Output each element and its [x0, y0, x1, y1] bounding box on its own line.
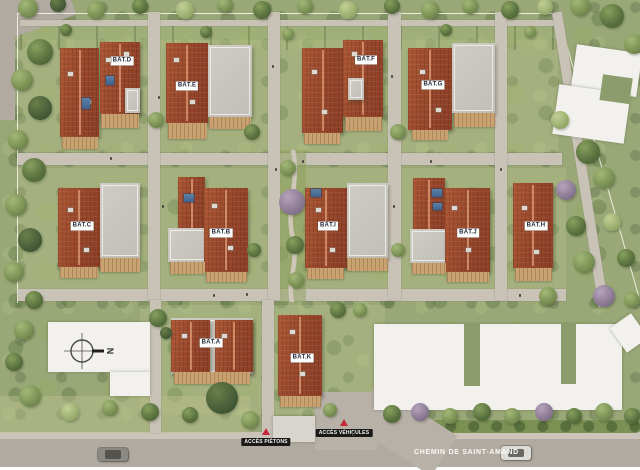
car — [98, 448, 128, 461]
tree — [339, 1, 357, 19]
tree — [282, 28, 294, 40]
tree — [280, 160, 296, 176]
building-label-k: BÂT.K — [291, 354, 314, 363]
path-vertical-4 — [495, 12, 507, 300]
tree — [141, 403, 159, 421]
building-j-flat-roof — [410, 229, 448, 263]
roof-skylight — [330, 248, 335, 252]
building-c-deck — [100, 258, 140, 272]
path-vertical-bottom-2 — [262, 300, 274, 433]
roof-skylight — [316, 208, 321, 212]
building-f-deck — [304, 133, 340, 144]
roof-skylight — [534, 250, 539, 254]
building-k-deck — [280, 396, 321, 407]
tree — [8, 130, 28, 150]
roof-skylight — [124, 52, 129, 56]
solar-panel — [82, 98, 90, 109]
tree — [593, 167, 615, 189]
roof-skylight — [68, 208, 73, 212]
neighbor-building-bottom — [374, 324, 622, 410]
person-figure — [352, 433, 354, 436]
building-label-c: BÂT.C — [71, 222, 94, 231]
tree — [241, 411, 259, 429]
person-figure — [246, 293, 248, 296]
roof-skylight — [290, 330, 295, 334]
tree — [391, 243, 405, 257]
solar-panel — [433, 203, 442, 210]
building-label-b: BÂT.B — [210, 229, 233, 238]
tree — [524, 26, 536, 38]
access-triangle-icon — [340, 419, 348, 426]
building-f-deck — [345, 117, 382, 131]
compass-north-label: N — [105, 348, 115, 355]
tree — [440, 24, 452, 36]
tree — [330, 302, 346, 318]
tree — [442, 408, 458, 424]
tree — [4, 262, 24, 282]
roof-skylight — [452, 206, 457, 210]
roof-skylight — [174, 58, 179, 62]
tree — [551, 111, 569, 129]
person-figure — [158, 96, 160, 99]
building-label-i: BÂT.I — [318, 222, 338, 231]
tree — [25, 291, 43, 309]
tree — [149, 309, 167, 327]
roof-skylight — [312, 70, 317, 74]
tree — [353, 303, 367, 317]
tree — [617, 249, 635, 267]
neighbor-building-right — [549, 38, 640, 153]
person-figure — [272, 65, 274, 68]
tree — [421, 1, 439, 19]
building-c-deck — [60, 267, 98, 278]
tree — [206, 382, 238, 414]
path-vertical-1 — [148, 12, 160, 300]
access-pedestrian-label: ACCÈS PIÉTONS — [241, 438, 290, 446]
building-label-g: BÂT.G — [422, 81, 445, 90]
tree — [18, 228, 42, 252]
person-figure — [275, 168, 277, 171]
solar-panel — [106, 76, 114, 85]
tree — [5, 353, 23, 371]
roof-skylight — [84, 248, 89, 252]
site-plan: BÂT.A BÂT.B BÂT.C BÂT.D BÂT.E BÂT.F BÂT.… — [0, 0, 640, 470]
path-top — [20, 20, 556, 26]
tree — [60, 24, 72, 36]
person-figure — [162, 205, 164, 208]
tree — [504, 408, 520, 424]
neighbor-gap — [561, 324, 576, 384]
building-c-flat-roof — [100, 183, 140, 258]
building-label-h: BÂT.H — [525, 222, 548, 231]
building-d-roof — [60, 48, 99, 137]
tree — [102, 400, 118, 416]
building-g-deck — [454, 113, 495, 127]
tree — [411, 403, 429, 421]
road-left-edge — [0, 0, 15, 120]
tree — [566, 216, 586, 236]
building-e-flat-roof — [208, 45, 252, 117]
solar-panel — [432, 189, 442, 197]
tree — [160, 327, 172, 339]
person-figure — [391, 75, 393, 78]
tree — [200, 26, 212, 38]
tree — [501, 1, 519, 19]
building-i-deck — [307, 268, 344, 279]
building-d-deck — [62, 137, 98, 149]
person-figure — [430, 160, 432, 163]
path-vertical-2 — [268, 12, 280, 300]
tree — [473, 403, 491, 421]
solar-panel — [311, 189, 321, 197]
tree — [253, 1, 271, 19]
tree — [390, 124, 406, 140]
person-figure — [302, 160, 304, 163]
building-i-deck — [347, 258, 388, 271]
tree — [244, 124, 260, 140]
neighbor-courtyard — [599, 74, 632, 104]
tree — [5, 194, 27, 216]
tree — [383, 405, 401, 423]
roof-skylight — [352, 52, 357, 56]
tree — [593, 285, 615, 307]
tree — [61, 403, 79, 421]
solar-panel — [184, 194, 194, 202]
tree — [595, 403, 613, 421]
tree — [603, 213, 621, 231]
building-label-f: BÂT.F — [355, 56, 377, 65]
tree — [148, 112, 164, 128]
building-label-j: BÂT.J — [457, 229, 479, 238]
neighbor-gap — [464, 324, 480, 386]
roof-skylight — [68, 72, 73, 76]
access-vehicles-label: ACCÈS VÉHICULES — [316, 429, 373, 437]
person-figure — [393, 205, 395, 208]
tree — [600, 4, 624, 28]
tree — [22, 158, 46, 182]
building-b-deck — [170, 262, 205, 274]
tree — [28, 96, 52, 120]
building-f-roof — [302, 48, 343, 133]
building-b-flat-roof — [168, 228, 207, 262]
building-g-flat-roof — [452, 43, 495, 113]
access-triangle-icon — [262, 428, 270, 435]
tree — [624, 34, 640, 54]
roof-skylight — [222, 334, 227, 338]
building-e-deck — [168, 123, 207, 139]
building-j-deck — [412, 263, 446, 274]
tree — [19, 385, 41, 407]
tree — [556, 180, 576, 200]
tree — [576, 140, 600, 164]
building-d-flat-roof — [125, 88, 140, 113]
roof-skylight — [436, 108, 441, 112]
building-label-a: BÂT.A — [200, 339, 223, 348]
tree — [624, 408, 640, 424]
tree — [279, 189, 305, 215]
person-figure — [110, 157, 112, 160]
building-a-deck — [174, 372, 250, 384]
roof-skylight — [420, 70, 425, 74]
tree — [286, 236, 304, 254]
tree — [11, 69, 33, 91]
roof-skylight — [190, 100, 195, 104]
street-name: CHEMIN DE SAINT-AMAND — [414, 449, 519, 456]
building-j-deck — [447, 272, 489, 282]
tree — [14, 320, 34, 340]
building-label-d: BÂT.D — [111, 57, 134, 66]
building-b-roof — [178, 177, 205, 231]
tree — [247, 243, 261, 257]
building-f-flat-roof — [348, 78, 364, 100]
tree — [624, 292, 640, 308]
tree — [27, 39, 53, 65]
tree — [539, 287, 557, 305]
tree — [182, 407, 198, 423]
tree — [535, 403, 553, 421]
building-d-deck — [101, 114, 139, 128]
building-label-e: BÂT.E — [176, 82, 198, 91]
compass-rose: N — [52, 322, 118, 380]
tree — [573, 251, 595, 273]
roof-skylight — [212, 204, 217, 208]
person-figure — [500, 168, 502, 171]
building-h-deck — [515, 268, 552, 281]
roof-skylight — [522, 206, 527, 210]
person-figure — [519, 294, 521, 297]
tree — [566, 408, 582, 424]
roof-skylight — [182, 334, 187, 338]
tree — [323, 403, 337, 417]
person-figure — [213, 294, 215, 297]
roof-skylight — [228, 246, 233, 250]
roof-skylight — [322, 110, 327, 114]
tree — [176, 1, 194, 19]
tree — [288, 272, 304, 288]
building-b-deck — [206, 272, 247, 282]
roof-skylight — [300, 372, 305, 376]
building-g-deck — [412, 130, 448, 140]
roof-skylight — [466, 248, 471, 252]
tree — [87, 1, 105, 19]
building-i-flat-roof — [347, 183, 388, 258]
roof-skylight — [106, 58, 111, 62]
